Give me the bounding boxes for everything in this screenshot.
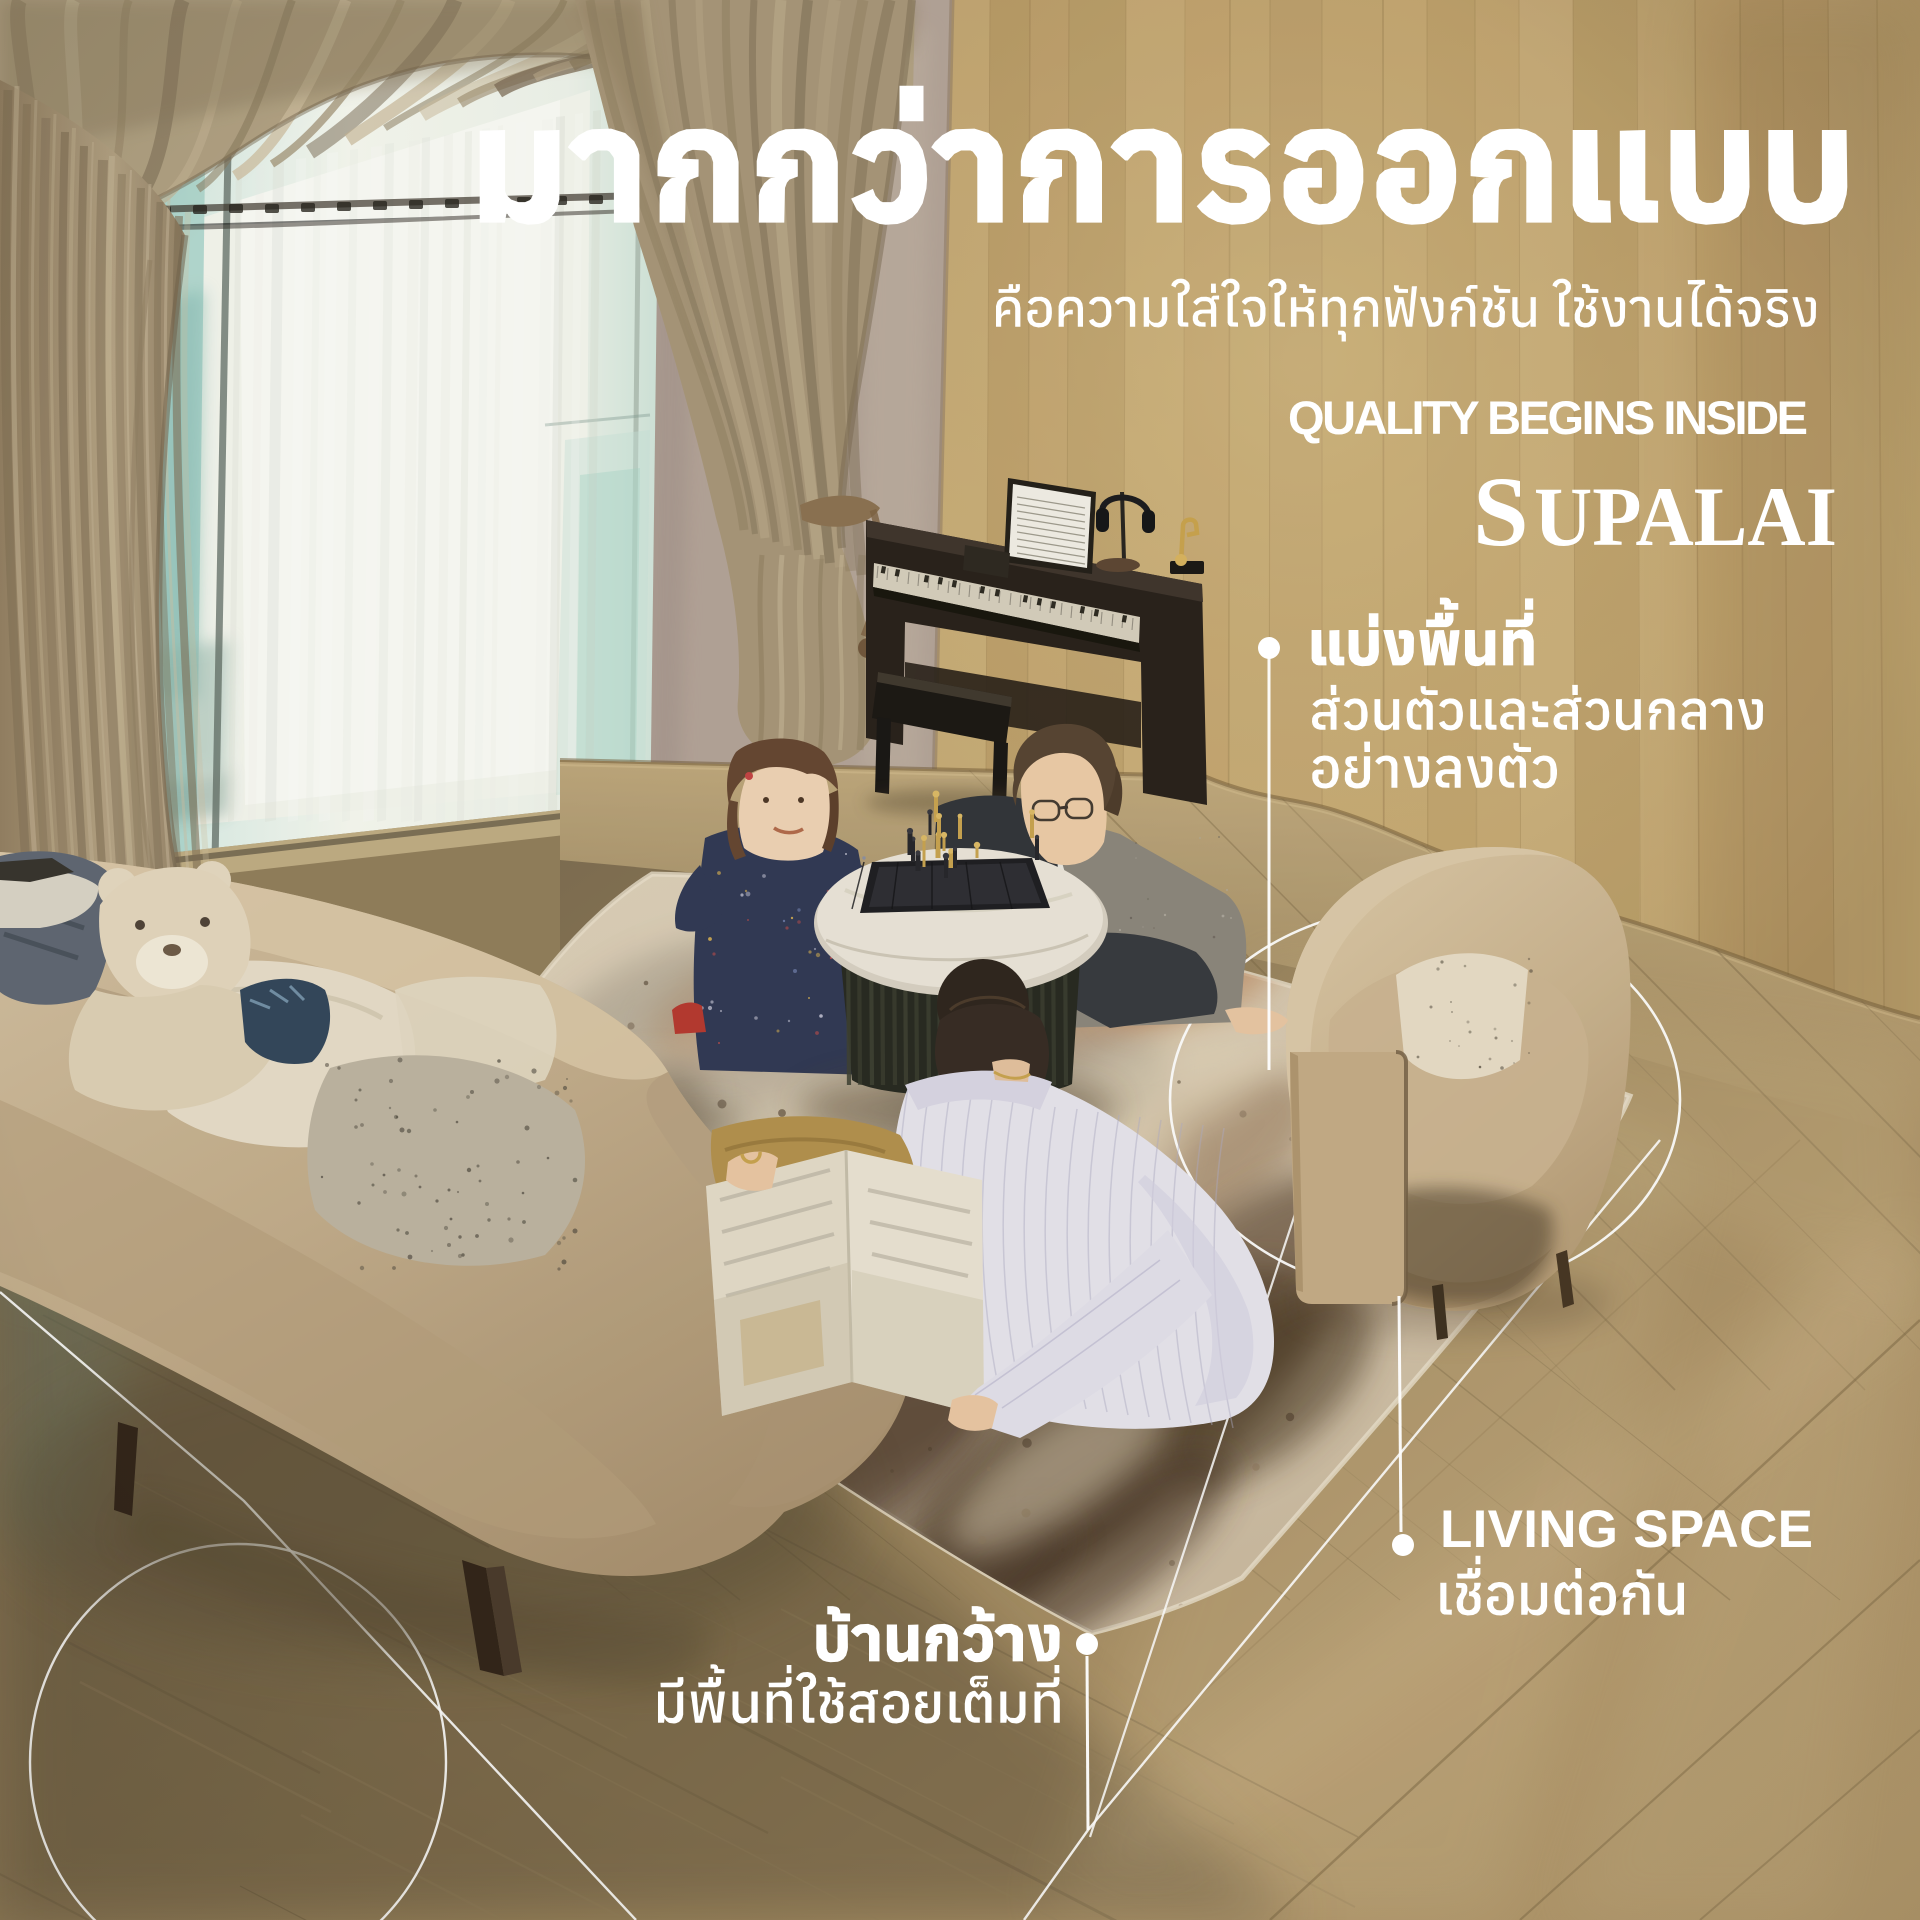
svg-text:S: S — [1473, 456, 1529, 567]
svg-text:LIVING SPACE: LIVING SPACE — [1440, 1500, 1813, 1559]
svg-text:QUALITY BEGINS INSIDE: QUALITY BEGINS INSIDE — [1288, 391, 1808, 444]
svg-text:UPALAI: UPALAI — [1534, 470, 1837, 564]
